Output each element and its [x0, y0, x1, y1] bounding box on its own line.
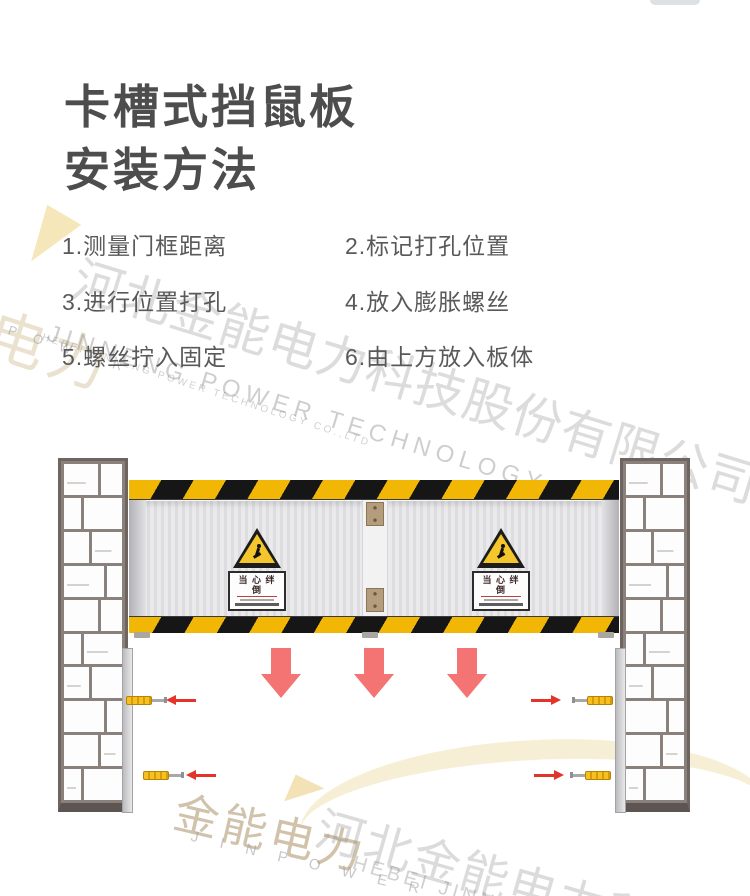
brick: [84, 769, 123, 800]
down-arrow-icon: [261, 648, 301, 698]
brick-row: [64, 566, 122, 597]
brick: [626, 735, 660, 766]
warning-triangle-icon: [477, 528, 525, 568]
brick-row: [626, 532, 684, 563]
brick: [92, 667, 122, 698]
brick: [663, 600, 684, 631]
brick-row: [64, 498, 122, 529]
brick: [64, 600, 98, 631]
brick: [663, 735, 684, 766]
brick: [64, 735, 98, 766]
brick-row: [626, 735, 684, 766]
step-3: 3.进行位置打孔: [62, 283, 227, 317]
brick: [64, 464, 98, 495]
expansion-screw-icon: [572, 695, 613, 705]
board-foot: [134, 632, 150, 638]
brick: [92, 532, 122, 563]
brick: [64, 498, 81, 529]
brick: [626, 464, 660, 495]
brick: [646, 634, 685, 665]
brick: [84, 498, 123, 529]
brick-row: [626, 566, 684, 597]
board-right-edge: [602, 499, 619, 616]
top-right-scrollbar-artifact: [650, 0, 700, 5]
brick: [626, 498, 643, 529]
brick-row: [626, 667, 684, 698]
brick: [64, 769, 81, 800]
title-line-1: 卡槽式挡鼠板: [64, 81, 358, 133]
hazard-stripe-top: [129, 480, 619, 500]
expansion-screw-icon: [143, 770, 184, 780]
brick: [646, 769, 685, 800]
brick: [626, 667, 651, 698]
step-5: 5.螺丝拧入固定: [62, 338, 227, 372]
brick: [84, 634, 123, 665]
warning-sign-plate: 当 心 绊 倒: [472, 571, 530, 611]
brick-row: [626, 498, 684, 529]
brick-row: [64, 634, 122, 665]
brick-row: [64, 701, 122, 732]
step-1: 1.测量门框距离: [62, 227, 227, 261]
brick: [64, 532, 89, 563]
warning-sign-text: 当 心 绊 倒: [476, 575, 526, 595]
brick: [654, 667, 684, 698]
brick: [64, 701, 104, 732]
brick-row: [626, 769, 684, 800]
left-arrow-icon: [166, 695, 196, 705]
brick-row: [626, 634, 684, 665]
brick-row: [626, 600, 684, 631]
brick: [101, 735, 122, 766]
step-6: 6.由上方放入板体: [345, 338, 534, 372]
brick-row: [64, 532, 122, 563]
brick: [101, 600, 122, 631]
right-channel-rail: [615, 648, 626, 813]
down-arrow-icon: [447, 648, 487, 698]
brick: [646, 498, 685, 529]
brick-row: [64, 735, 122, 766]
expansion-screw-icon: [126, 695, 167, 705]
hazard-stripe-bottom: [129, 616, 619, 633]
down-arrow-icon: [354, 648, 394, 698]
warning-sign-left: 当 心 绊 倒: [228, 528, 286, 611]
hinge-bottom: [366, 588, 384, 612]
brick: [663, 464, 684, 495]
right-arrow-icon: [534, 770, 564, 780]
brick-row: [626, 701, 684, 732]
left-channel-rail: [122, 648, 133, 813]
brick: [626, 701, 666, 732]
left-arrow-icon: [186, 770, 216, 780]
warning-sign-right: 当 心 绊 倒: [472, 528, 530, 611]
board-foot: [362, 632, 378, 638]
warning-sign-text: 当 心 绊 倒: [232, 575, 282, 595]
brick: [626, 634, 643, 665]
brick-row: [64, 464, 122, 495]
brick: [654, 532, 684, 563]
expansion-screw-icon: [570, 770, 611, 780]
brick: [107, 566, 122, 597]
title-line-2: 安装方法: [64, 144, 260, 196]
brick: [669, 701, 684, 732]
brick: [626, 532, 651, 563]
running-person-icon: [251, 544, 263, 560]
brick: [101, 464, 122, 495]
hinge-top: [366, 502, 384, 526]
brick: [64, 667, 89, 698]
running-person-icon: [495, 544, 507, 560]
product-instruction-image: 金能电力 J I N P O W E R HEBEI JINNENG POWER…: [0, 0, 750, 896]
brick: [626, 600, 660, 631]
brick-row: [64, 667, 122, 698]
brick: [626, 769, 643, 800]
left-brick-pillar: [58, 458, 128, 812]
page-title: 卡槽式挡鼠板安装方法: [64, 76, 358, 202]
board-foot: [598, 632, 614, 638]
brick: [669, 566, 684, 597]
brick-row: [626, 464, 684, 495]
brick-row: [64, 600, 122, 631]
brick: [64, 566, 104, 597]
board-left-edge: [129, 499, 146, 616]
warning-triangle-icon: [233, 528, 281, 568]
brick-row: [64, 769, 122, 800]
step-2: 2.标记打孔位置: [345, 227, 510, 261]
brick: [64, 634, 81, 665]
step-4: 4.放入膨胀螺丝: [345, 283, 510, 317]
right-brick-pillar: [620, 458, 690, 812]
warning-sign-plate: 当 心 绊 倒: [228, 571, 286, 611]
brick: [626, 566, 666, 597]
brick: [107, 701, 122, 732]
right-arrow-icon: [531, 695, 561, 705]
